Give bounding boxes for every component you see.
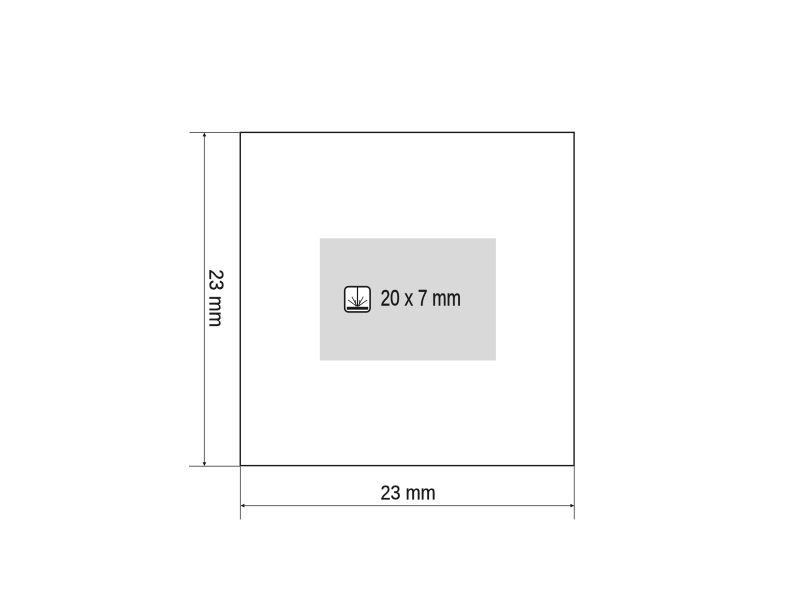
svg-text:23 mm: 23 mm	[204, 269, 226, 327]
svg-text:20 x 7 mm: 20 x 7 mm	[381, 286, 461, 311]
svg-text:23 mm: 23 mm	[381, 483, 436, 505]
